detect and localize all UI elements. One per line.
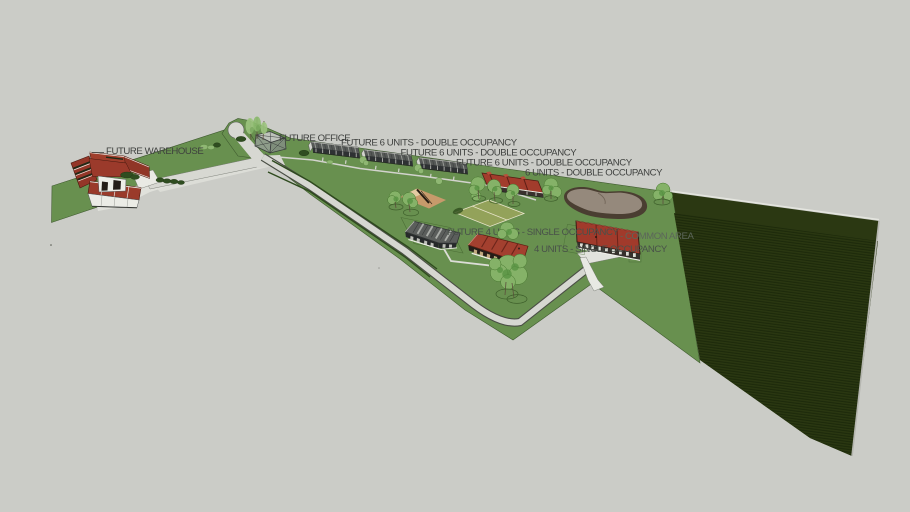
svg-text:FUTURE OFFICE: FUTURE OFFICE <box>279 133 350 144</box>
svg-text:4 UNITS - SINGLE OCCUPANCY: 4 UNITS - SINGLE OCCUPANCY <box>534 244 668 255</box>
svg-text:- COMMON AREA: - COMMON AREA <box>620 231 694 242</box>
svg-text:FUTURE 4 UNITS - SINGLE OCCUPA: FUTURE 4 UNITS - SINGLE OCCUPANCY <box>447 227 619 238</box>
svg-text:6 UNITS - DOUBLE OCCUPANCY: 6 UNITS - DOUBLE OCCUPANCY <box>525 168 663 179</box>
svg-text:FUTURE WAREHOUSE: FUTURE WAREHOUSE <box>106 146 203 157</box>
